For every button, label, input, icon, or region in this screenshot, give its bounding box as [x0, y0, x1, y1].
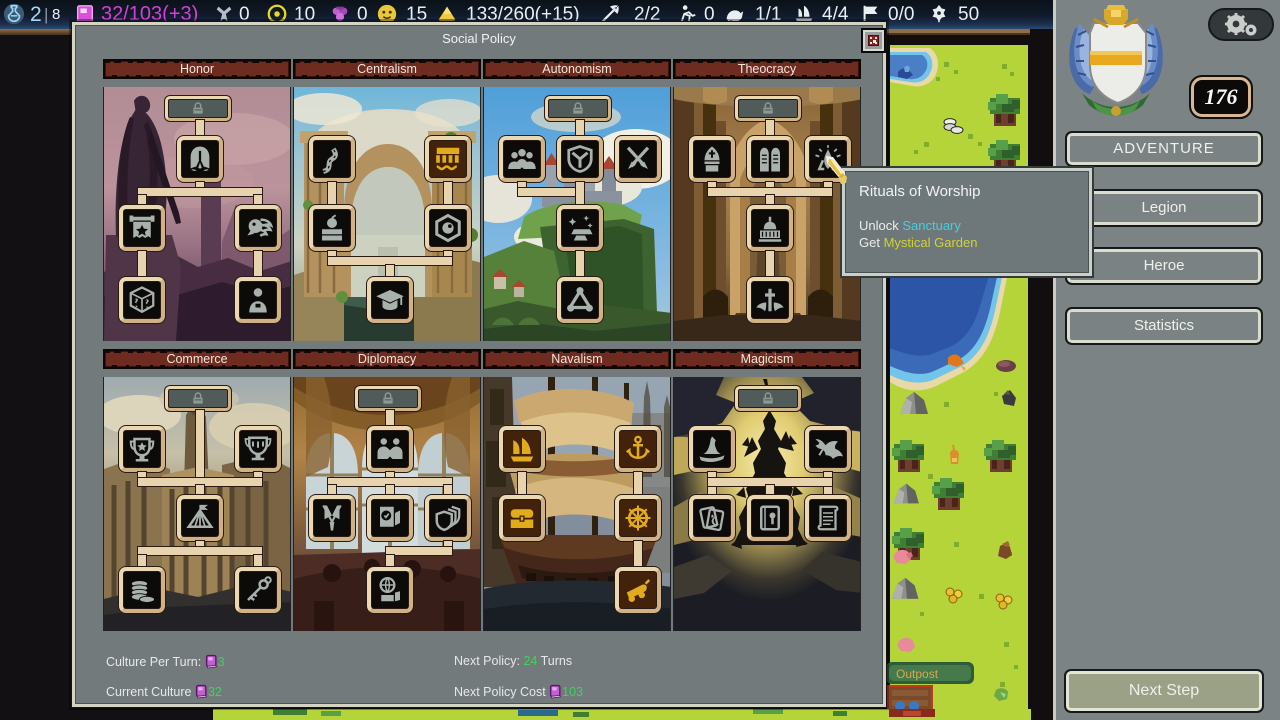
svg-text:Outpost: Outpost [896, 667, 939, 681]
